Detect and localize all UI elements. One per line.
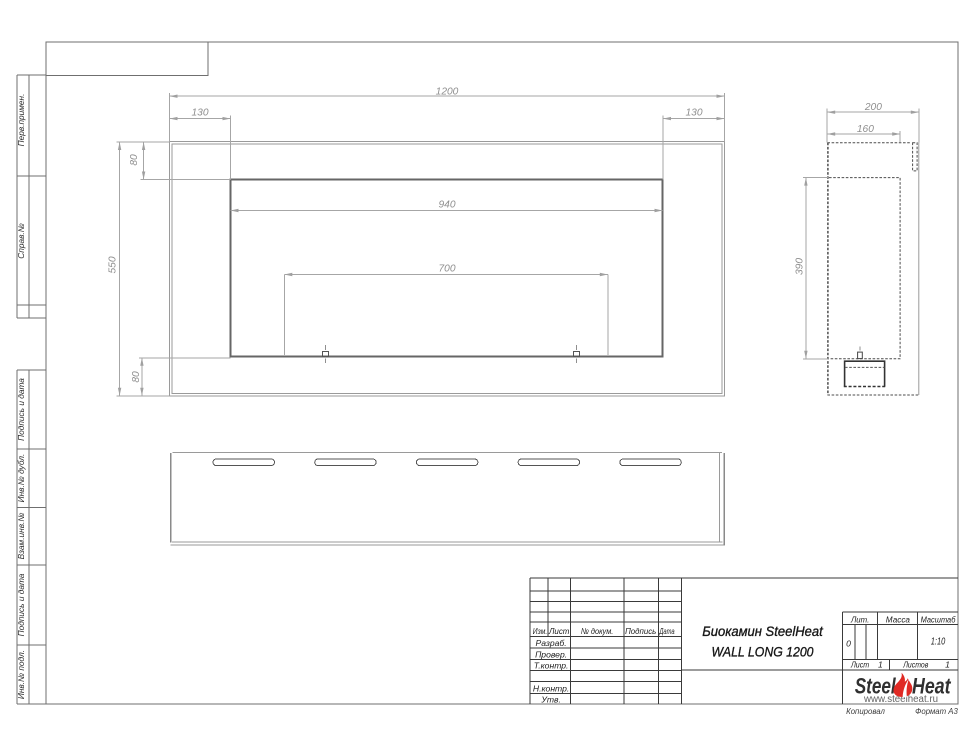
svg-text:Формат А3: Формат А3 [915,707,958,716]
svg-text:Инв.№ дубл.: Инв.№ дубл. [16,454,26,503]
svg-text:200: 200 [864,102,882,113]
svg-text:Утв.: Утв. [540,694,561,704]
svg-text:Листов: Листов [902,660,928,670]
svg-text:Изм.: Изм. [533,626,547,636]
svg-text:80: 80 [129,154,140,166]
svg-text:130: 130 [686,108,703,119]
svg-text:550: 550 [108,256,119,273]
svg-text:Подпись: Подпись [625,626,657,636]
svg-text:0: 0 [846,639,851,649]
svg-text:Взам.инв.№: Взам.инв.№ [16,513,26,560]
svg-text:Дата: Дата [659,626,675,636]
svg-text:Лит.: Лит. [850,615,869,625]
svg-text:940: 940 [439,200,456,211]
svg-text:Подпись и дата: Подпись и дата [16,573,26,636]
svg-text:Разраб.: Разраб. [536,638,567,648]
svg-text:№ докум.: № докум. [581,626,614,636]
svg-text:1:10: 1:10 [931,637,946,648]
svg-text:Подпись и дата: Подпись и дата [16,378,26,441]
svg-text:Лист: Лист [548,626,569,636]
svg-text:390: 390 [795,258,806,275]
svg-text:1200: 1200 [436,87,459,98]
svg-text:160: 160 [857,124,874,135]
svg-text:Перв.примен.: Перв.примен. [16,94,26,147]
svg-text:Масштаб: Масштаб [921,615,957,625]
svg-text:Т.контр.: Т.контр. [534,661,569,671]
svg-text:Справ.№: Справ.№ [16,223,26,258]
svg-text:WALL LONG 1200: WALL LONG 1200 [712,645,814,661]
svg-text:Биокамин SteelHeat: Биокамин SteelHeat [702,624,823,640]
svg-text:Копировал: Копировал [846,707,885,716]
svg-text:Н.контр.: Н.контр. [533,683,569,693]
svg-text:Инв.№ подл.: Инв.№ подл. [16,650,26,699]
svg-text:Лист: Лист [850,660,869,670]
svg-text:700: 700 [439,264,456,275]
svg-text:130: 130 [192,108,209,119]
svg-text:Масса: Масса [886,615,910,625]
svg-text:Провер.: Провер. [535,650,567,660]
svg-text:1: 1 [878,660,883,670]
svg-text:1: 1 [945,660,950,670]
svg-text:80: 80 [131,371,142,383]
